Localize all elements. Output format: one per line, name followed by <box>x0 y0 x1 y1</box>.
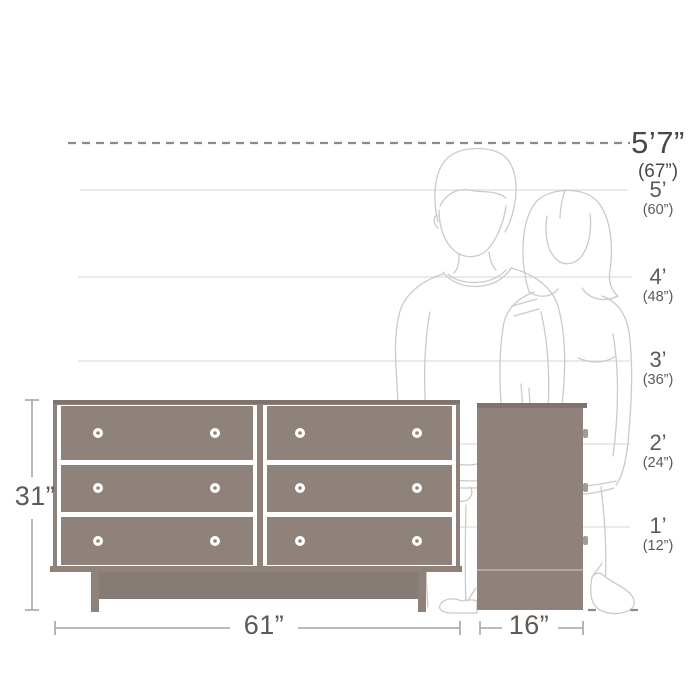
inches-value: (60”) <box>643 201 674 221</box>
man-face-outline <box>439 206 506 257</box>
feet-value: 3’ <box>649 349 666 371</box>
dresser-leg <box>91 572 99 612</box>
drawer <box>267 406 452 460</box>
feet-value: 5’ <box>649 179 666 201</box>
dresser-plinth <box>99 572 418 599</box>
side-knob <box>583 536 588 545</box>
woman-right-arm-inner <box>613 334 618 456</box>
feet-value: 4’ <box>649 266 666 288</box>
man-shoe <box>440 599 477 613</box>
man-ankle <box>468 588 476 601</box>
inches-value: (36”) <box>643 371 674 391</box>
dresser-side-view <box>477 403 588 610</box>
height-label-2ft: 2’ (24”) <box>620 432 696 474</box>
inches-value: (12”) <box>643 537 674 557</box>
height-label-5ft7: 5’7” (67”) <box>620 127 696 184</box>
height-label-4ft: 4’ (48”) <box>620 266 696 308</box>
dresser-center-stile <box>257 405 263 566</box>
woman-face-outline <box>546 214 591 264</box>
dresser-bottom-rail <box>50 566 462 572</box>
side-knob <box>583 483 588 492</box>
height-label-3ft: 3’ (36”) <box>620 349 696 391</box>
side-body <box>477 403 583 610</box>
side-knob <box>583 429 588 438</box>
height-label-1ft: 1’ (12”) <box>620 515 696 557</box>
drawer <box>61 465 253 512</box>
dresser-leg <box>418 572 426 612</box>
diagram-canvas <box>0 0 700 700</box>
height-label-5ft: 5’ (60”) <box>620 179 696 221</box>
inches-value: (24”) <box>643 454 674 474</box>
sleeve-stripes <box>512 299 539 316</box>
woman-shoe <box>591 573 635 613</box>
feet-value: 5’7” <box>631 127 685 159</box>
feet-value: 2’ <box>649 432 666 454</box>
feet-value: 1’ <box>649 515 666 537</box>
dresser-front-view <box>50 400 462 612</box>
drawer <box>61 406 253 460</box>
furniture-size-comparison-diagram: 5’7” (67”) 5’ (60”) 4’ (48”) 3’ (36”) 2’… <box>0 0 700 700</box>
inches-value: (48”) <box>643 288 674 308</box>
dresser-top-edge <box>53 400 460 404</box>
drawer <box>267 465 452 512</box>
dresser-height-label: 31” <box>6 481 64 512</box>
man-hairline <box>440 190 506 206</box>
side-top-edge <box>477 403 587 408</box>
woman-hair-part <box>560 190 565 218</box>
dresser-depth-label: 16” <box>494 610 564 641</box>
dresser-width-label: 61” <box>226 610 302 641</box>
drawer <box>267 517 452 565</box>
drawer <box>61 517 253 565</box>
